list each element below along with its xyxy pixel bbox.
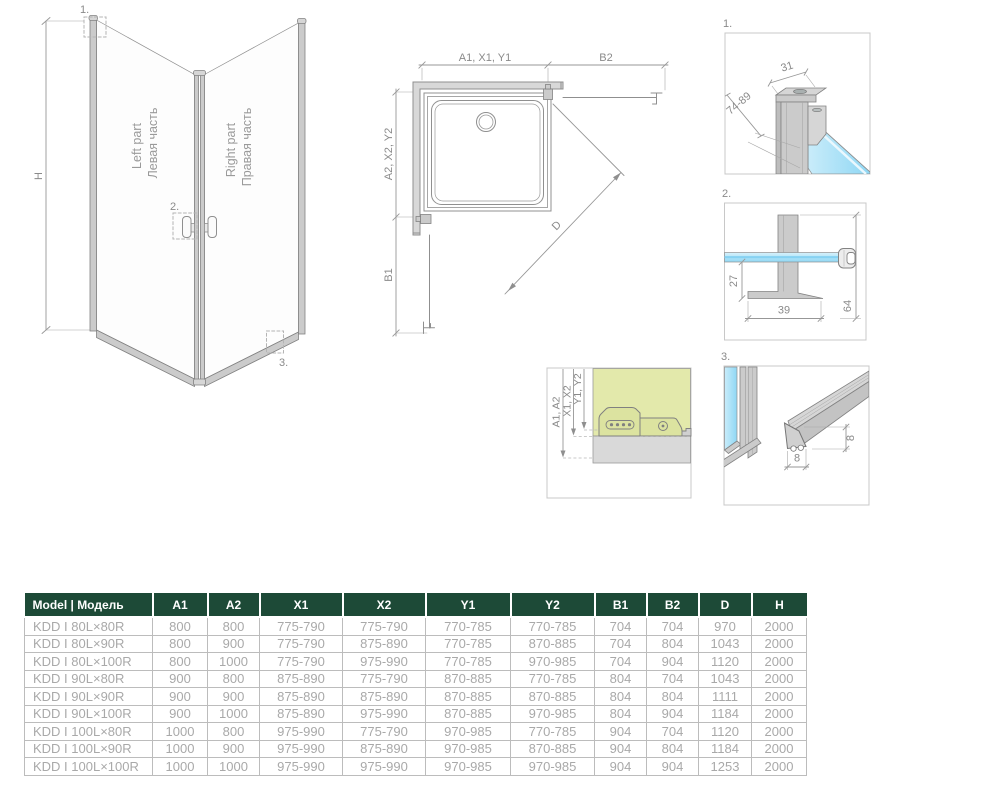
left-glass-panel [97,20,195,379]
dim-b2: B2 [599,52,612,64]
value-cell: 770-785 [511,617,595,635]
value-cell: 800 [208,617,260,635]
detail-2-dim-39: 39 [778,305,790,317]
column-header: D [699,593,752,617]
value-cell: 775-790 [343,670,426,688]
value-cell: 1184 [699,740,752,758]
value-cell: 804 [595,670,647,688]
marker-3: 3. [279,357,288,369]
value-cell: 804 [647,740,699,758]
left-door-open [424,235,435,334]
value-cell: 970-985 [511,705,595,723]
value-cell: 804 [647,688,699,706]
value-cell: 875-890 [260,705,343,723]
table-row: KDD I 80L×80R800800775-790775-790770-785… [25,617,807,635]
table-row: KDD I 90L×90R900900875-890875-890870-885… [25,688,807,706]
value-cell: 904 [595,740,647,758]
value-cell: 704 [647,723,699,741]
right-door-open [563,93,662,104]
value-cell: 770-785 [511,723,595,741]
column-header: A1 [153,593,208,617]
value-cell: 975-990 [343,653,426,671]
value-cell: 1120 [699,653,752,671]
value-cell: 2000 [752,705,807,723]
value-cell: 775-790 [343,723,426,741]
tray-section [593,436,691,463]
value-cell: 875-890 [343,740,426,758]
handle-knob [839,249,856,269]
column-header: H [752,593,807,617]
value-cell: 904 [647,653,699,671]
value-cell: 970-985 [426,723,511,741]
value-cell: 775-790 [343,617,426,635]
detail-2-dim-64: 64 [842,300,854,312]
value-cell: 770-785 [426,653,511,671]
value-cell: 1111 [699,688,752,706]
detail-2: 2. 27 39 [722,188,866,340]
value-cell: 800 [153,635,208,653]
detail-3-label: 3. [721,351,730,363]
table-row: KDD I 90L×80R900800875-890775-790870-885… [25,670,807,688]
detail-1: 1. [723,18,870,174]
value-cell: 704 [595,617,647,635]
column-header: X1 [260,593,343,617]
model-cell: KDD I 100L×90R [25,740,153,758]
value-cell: 800 [153,653,208,671]
glass-panel [725,367,738,450]
column-header: Y1 [426,593,511,617]
value-cell: 800 [208,723,260,741]
mount-dim-y: Y1, Y2 [572,373,584,404]
value-cell: 2000 [752,653,807,671]
value-cell: 900 [153,705,208,723]
value-cell: 775-790 [260,635,343,653]
value-cell: 875-890 [260,688,343,706]
model-cell: KDD I 100L×80R [25,723,153,741]
value-cell: 804 [647,635,699,653]
value-cell: 775-790 [260,653,343,671]
dim-a2x2y2: A2, X2, Y2 [383,128,395,180]
value-cell: 2000 [752,688,807,706]
dim-d: D [550,219,564,233]
dim-b1: B1 [383,268,395,281]
value-cell: 975-990 [260,758,343,776]
table-header-row: Model | МодельA1A2X1X2Y1Y2B1B2DH [25,593,807,617]
value-cell: 970-985 [426,740,511,758]
value-cell: 970-985 [511,758,595,776]
technical-drawing: H 1. 2. 3. [0,0,994,585]
model-cell: KDD I 90L×100R [25,705,153,723]
value-cell: 704 [647,617,699,635]
left-part-label-en: Left part [130,123,144,169]
value-cell: 870-885 [511,740,595,758]
value-cell: 1253 [699,758,752,776]
dim-a1x1y1: A1, X1, Y1 [459,52,511,64]
door-handles [183,217,217,238]
value-cell: 900 [153,688,208,706]
value-cell: 875-890 [343,688,426,706]
value-cell: 870-885 [426,688,511,706]
column-header: A2 [208,593,260,617]
value-cell: 900 [208,688,260,706]
right-glass-panel [205,23,299,379]
detail-1-label: 1. [723,18,732,30]
value-cell: 975-990 [343,758,426,776]
value-cell: 975-990 [260,740,343,758]
value-cell: 804 [595,705,647,723]
value-cell: 2000 [752,617,807,635]
value-cell: 1000 [208,653,260,671]
value-cell: 970-985 [426,758,511,776]
value-cell: 904 [647,705,699,723]
value-cell: 804 [595,688,647,706]
value-cell: 2000 [752,723,807,741]
marker-2: 2. [170,201,179,213]
value-cell: 870-885 [511,635,595,653]
model-cell: KDD I 80L×100R [25,653,153,671]
value-cell: 1000 [208,705,260,723]
value-cell: 2000 [752,670,807,688]
value-cell: 870-885 [426,670,511,688]
value-cell: 770-785 [426,635,511,653]
value-cell: 870-885 [426,705,511,723]
value-cell: 875-890 [260,670,343,688]
model-cell: KDD I 100L×100R [25,758,153,776]
table-row: KDD I 90L×100R9001000875-890975-990870-8… [25,705,807,723]
value-cell: 704 [595,653,647,671]
value-cell: 2000 [752,758,807,776]
value-cell: 900 [208,635,260,653]
value-cell: 770-785 [426,617,511,635]
height-dimension: H [33,18,92,334]
value-cell: 800 [153,617,208,635]
value-cell: 900 [208,740,260,758]
value-cell: 870-885 [511,688,595,706]
plan-view: A1, X1, Y1 B2 A2, X2, Y2 B1 [383,52,668,336]
model-cell: KDD I 80L×80R [25,617,153,635]
detail-3-dim-w: 8 [794,453,800,465]
value-cell: 1043 [699,635,752,653]
shower-tray [432,101,544,205]
value-cell: 875-890 [343,635,426,653]
value-cell: 975-990 [260,723,343,741]
value-cell: 975-990 [343,705,426,723]
value-cell: 1000 [153,740,208,758]
value-cell: 2000 [752,740,807,758]
value-cell: 1000 [153,723,208,741]
detail-3: 3. [720,351,869,505]
height-label: H [33,172,45,180]
value-cell: 800 [208,670,260,688]
detail-3-dim-h: 8 [845,435,857,441]
table-row: KDD I 100L×80R1000800975-990775-790970-9… [25,723,807,741]
column-header: X2 [343,593,426,617]
left-part-label-ru: Левая часть [146,108,160,179]
column-header: Model | Модель [25,593,153,617]
marker-1: 1. [80,4,89,16]
table-row: KDD I 100L×90R1000900975-990875-890970-9… [25,740,807,758]
value-cell: 1043 [699,670,752,688]
column-header: B1 [595,593,647,617]
column-header: B2 [647,593,699,617]
detail-2-dim-27: 27 [728,275,740,287]
table-row: KDD I 80L×100R8001000775-790975-990770-7… [25,653,807,671]
right-part-label-en: Right part [224,122,238,177]
perspective-diagram: H 1. 2. 3. [33,4,306,387]
value-cell: 904 [647,758,699,776]
value-cell: 904 [595,758,647,776]
table-row: KDD I 100L×100R10001000975-990975-990970… [25,758,807,776]
value-cell: 904 [595,723,647,741]
value-cell: 704 [647,670,699,688]
model-cell: KDD I 80L×90R [25,635,153,653]
value-cell: 775-790 [260,617,343,635]
right-part-label-ru: Правая часть [240,108,254,187]
spec-table: Model | МодельA1A2X1X2Y1Y2B1B2DHKDD I 80… [24,593,807,776]
technical-drawing-page: H 1. 2. 3. [0,0,994,800]
column-header: Y2 [511,593,595,617]
table-row: KDD I 80L×90R800900775-790875-890770-785… [25,635,807,653]
value-cell: 900 [153,670,208,688]
value-cell: 1000 [208,758,260,776]
value-cell: 1120 [699,723,752,741]
model-cell: KDD I 90L×80R [25,670,153,688]
mount-detail: A1, A2 X1, X2 Y1, Y2 [547,368,691,498]
model-cell: KDD I 90L×90R [25,688,153,706]
value-cell: 1000 [153,758,208,776]
value-cell: 970-985 [511,653,595,671]
value-cell: 2000 [752,635,807,653]
value-cell: 1184 [699,705,752,723]
value-cell: 704 [595,635,647,653]
value-cell: 970 [699,617,752,635]
detail-2-label: 2. [722,188,731,200]
value-cell: 770-785 [511,670,595,688]
